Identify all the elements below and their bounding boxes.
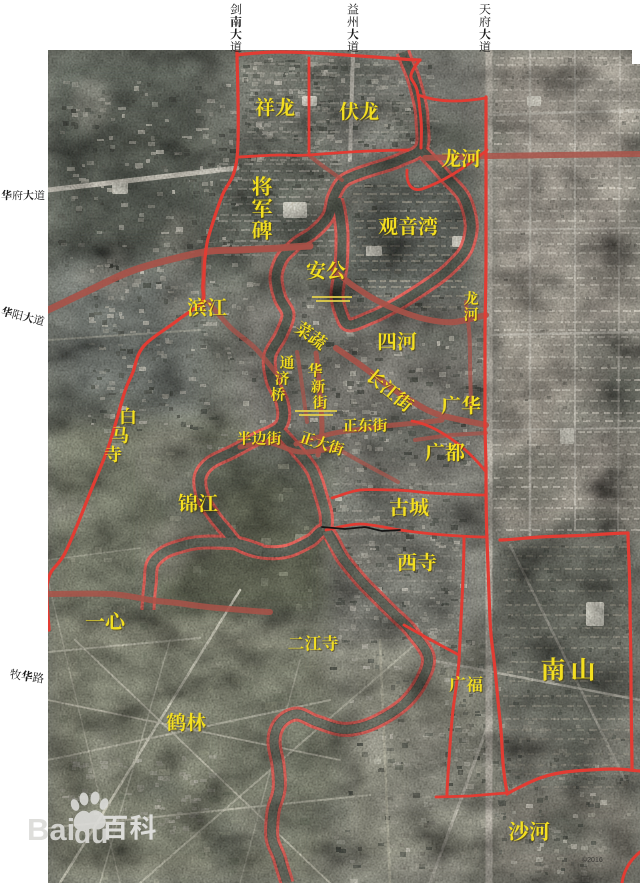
svg-text:©2016: ©2016: [582, 856, 603, 864]
svg-text:Bai: Bai: [27, 812, 75, 847]
